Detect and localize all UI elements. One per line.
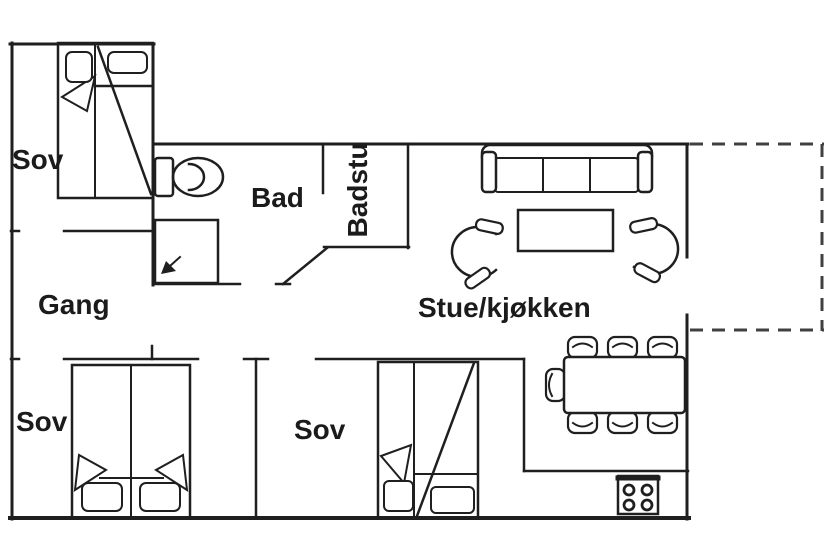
room-label-sov-nw: Sov [12,146,63,174]
pillow-icon [66,52,92,82]
double-bed-icon [378,362,478,518]
pillow-icon [140,483,180,511]
pillow-icon [82,483,122,511]
double-bed-icon [58,43,153,198]
room-label-sov-s: Sov [294,416,345,444]
room-label-bad: Bad [251,184,304,212]
armchair-icon [452,218,504,290]
floor-plan-drawing [0,0,830,555]
toilet-icon [155,158,223,196]
pillow-icon [384,481,413,511]
room-label-badstu: Badstu [344,143,372,238]
armchair-icon [629,217,678,284]
sofa-icon [482,145,652,192]
room-label-sov-sw: Sov [16,408,67,436]
outer-walls [10,43,689,519]
stove-icon [618,476,658,514]
pillow-icon [431,487,474,513]
double-bed-icon [72,365,190,518]
terrace-dashed-outline [690,144,824,331]
room-label-stue-kjokken: Stue/kjøkken [418,294,591,322]
coffee-table-icon [518,210,613,251]
room-label-gang: Gang [38,291,110,319]
pillow-icon [108,52,147,73]
floor-plan: Sov Bad Badstu Gang Stue/kjøkken Sov Sov [0,0,830,555]
dining-table-icon [564,357,685,413]
dining-set [546,337,685,433]
shower-icon [155,220,218,283]
